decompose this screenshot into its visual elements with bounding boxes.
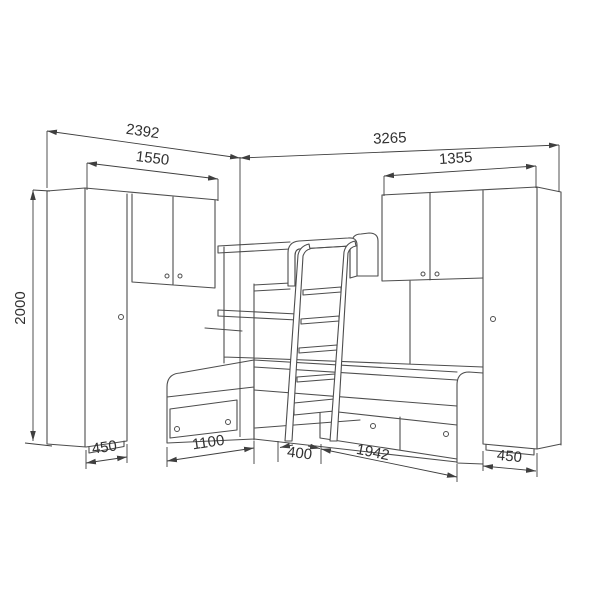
ladder-step-1 <box>303 287 341 295</box>
dim-line-450-right <box>483 466 536 471</box>
upper-bed-base <box>254 283 290 291</box>
dim-label-450-right: 450 <box>496 447 523 466</box>
dim-label-2392: 2392 <box>125 121 160 142</box>
right-wardrobe <box>382 187 561 455</box>
ladder-step-2 <box>301 316 339 324</box>
left-cabinet-knob-1 <box>165 274 169 278</box>
dim-label-450-left: 450 <box>91 437 118 457</box>
dim-label-1942: 1942 <box>355 441 391 464</box>
right-cabinet-knob-1 <box>421 272 425 276</box>
left-bed <box>167 360 254 443</box>
wall-shelf <box>205 310 297 331</box>
right-bed-drawer-knob-2 <box>444 432 449 437</box>
ladder-step-3 <box>299 345 337 353</box>
dim-label-2000: 2000 <box>12 291 29 324</box>
left-overhead-cabinet <box>132 194 215 288</box>
shelf-lines <box>205 310 297 331</box>
ladder-step-4 <box>297 374 335 382</box>
dim-label-1100: 1100 <box>191 432 225 454</box>
right-cabinet-knob-2 <box>435 272 439 276</box>
dim-line-3265 <box>240 145 559 158</box>
ladder-step-5 <box>294 399 334 415</box>
left-cabinet-body <box>132 194 215 288</box>
left-bed-drawer-knob-2 <box>226 420 231 425</box>
dim-line-1355 <box>384 166 536 176</box>
right-cabinet-body <box>382 193 483 281</box>
assembly-drawing-svg: 2392 1550 3265 1355 2000 450 1100 400 19… <box>0 0 600 600</box>
dimension-labels: 2392 1550 3265 1355 2000 450 1100 400 19… <box>12 121 523 466</box>
ladder <box>285 241 356 441</box>
dim-label-1550: 1550 <box>135 148 170 169</box>
right-wardrobe-body <box>382 187 561 455</box>
left-bed-drawer-knob-1 <box>175 427 180 432</box>
right-bed-headboard <box>457 372 483 464</box>
right-bed-drawer-knob-1 <box>371 424 376 429</box>
right-wardrobe-knob <box>491 317 496 322</box>
dim-label-1355: 1355 <box>438 149 472 168</box>
left-cabinet-knob-2 <box>178 274 182 278</box>
right-overhead-cabinet <box>382 193 483 281</box>
left-bed-drawer <box>170 400 237 438</box>
furniture-assembly-drawing: 2392 1550 3265 1355 2000 450 1100 400 19… <box>0 0 600 600</box>
dim-line-450-left <box>86 457 127 463</box>
dim-label-400: 400 <box>286 444 313 464</box>
left-wardrobe-knob <box>119 315 124 320</box>
upper-bed-back-rail <box>218 242 290 253</box>
dim-label-3265: 3265 <box>373 129 407 147</box>
left-bed-body <box>167 360 254 443</box>
